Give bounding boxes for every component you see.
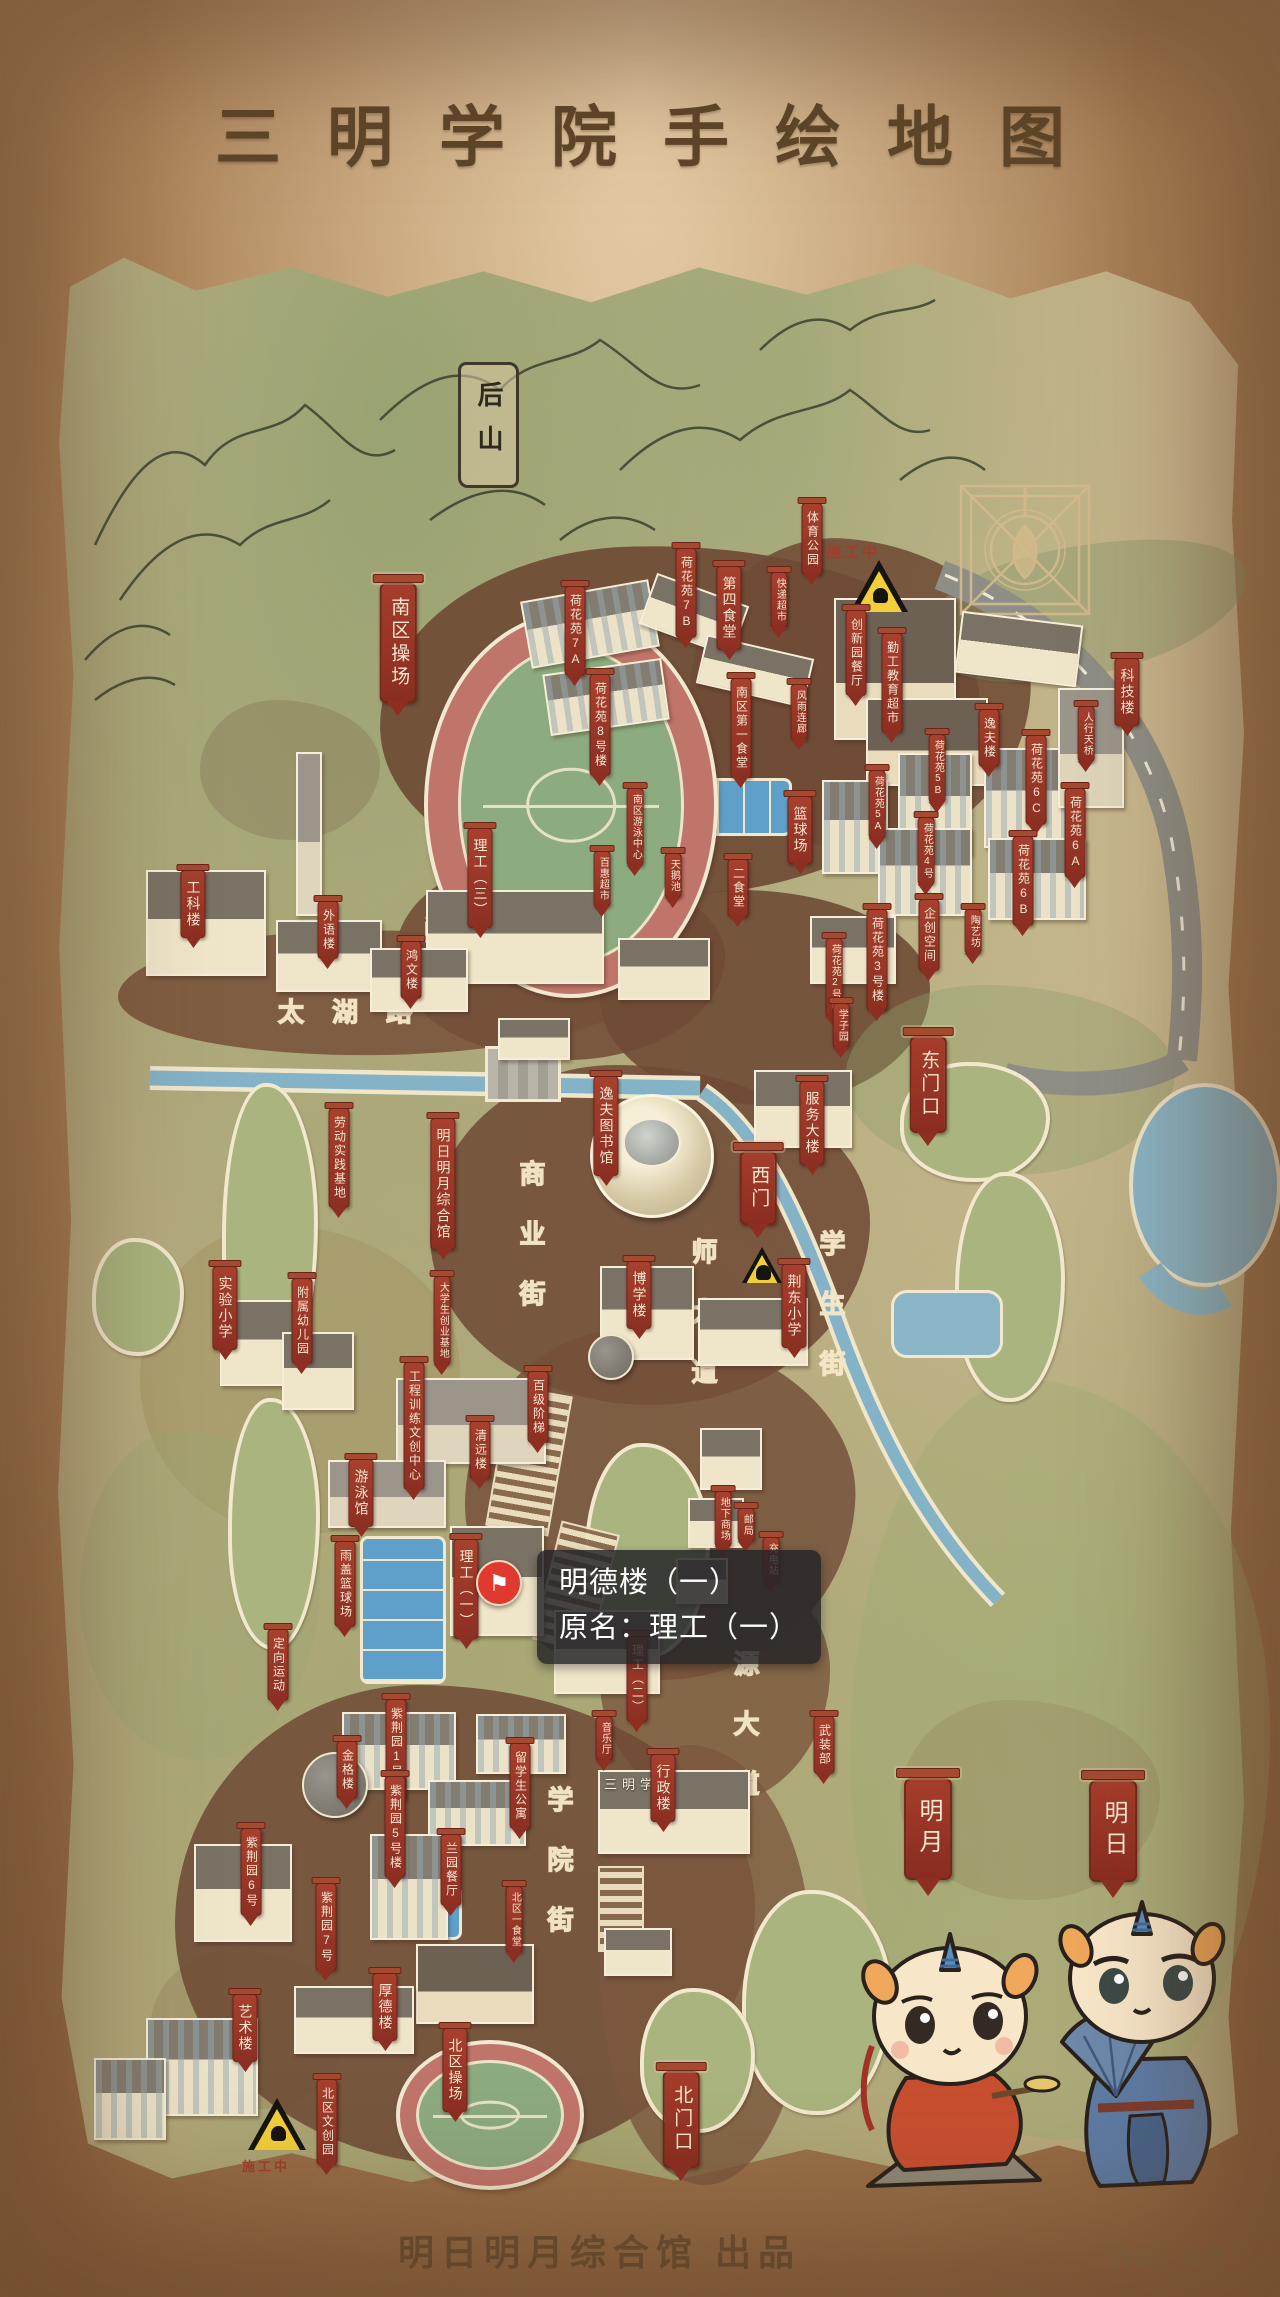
- campus-pond: [891, 1290, 1003, 1358]
- poi-label-yifu-lou[interactable]: 逸夫楼: [979, 709, 1000, 767]
- poi-label-yifu-tushuguan[interactable]: 逸夫图书馆: [593, 1076, 618, 1176]
- poi-label-lanqiu-chang[interactable]: 篮球场: [787, 796, 812, 864]
- poi-label-ligong-1[interactable]: 理工（一）: [453, 1539, 478, 1639]
- poi-label-nanqu-caochang[interactable]: 南区操场: [380, 583, 417, 703]
- lawn-patch: [92, 1238, 184, 1356]
- producer-credit: 明日明月综合馆 出品: [398, 2224, 801, 2276]
- back-hill-sign: 后山: [458, 362, 519, 488]
- tooltip-original-name: 原名：理工（一）: [559, 1606, 799, 1651]
- poi-label-hehuayuan-5a[interactable]: 荷花苑5A: [869, 770, 886, 839]
- poi-label-hehuayuan-7b[interactable]: 荷花苑7B: [676, 548, 697, 638]
- page-title: 三明学院手绘地图: [0, 84, 1280, 180]
- poi-label-houde-lou[interactable]: 厚德楼: [372, 1973, 397, 2041]
- building: [370, 1834, 448, 1940]
- poi-label-zijingyuan-5[interactable]: 紫荆园5号楼: [385, 1776, 406, 1878]
- stadium-infield: [416, 2060, 564, 2170]
- poi-label-xuezi-yuan[interactable]: 学子园: [833, 1003, 850, 1048]
- poi-label-qingong-jiaoyu-chaoshi[interactable]: 勤工教育超市: [882, 633, 903, 733]
- poi-label-beiqu-caochang[interactable]: 北区操场: [442, 2028, 467, 2112]
- poi-label-fuwu-dalou[interactable]: 服务大楼: [799, 1081, 824, 1165]
- observatory-dome: [588, 1334, 634, 1380]
- road-label-xueyuan-street: 学院街: [540, 1786, 577, 1966]
- building: [146, 870, 266, 976]
- poi-label-er-shitang[interactable]: 二食堂: [728, 859, 749, 917]
- poi-label-chuangxinyuan-canting[interactable]: 创新园餐厅: [846, 610, 867, 696]
- stadium-track: [396, 2040, 584, 2190]
- poi-label-xingzheng-lou[interactable]: 行政楼: [650, 1754, 675, 1822]
- poi-label-dingxiang-yundong[interactable]: 定向运动: [268, 1629, 289, 1701]
- poi-label-hehuayuan-5b[interactable]: 荷花苑5B: [929, 734, 946, 803]
- poi-label-beiqu-yi-shitang[interactable]: 北区一食堂: [506, 1886, 523, 1953]
- poi-label-jinge-lou[interactable]: 金格楼: [337, 1741, 358, 1799]
- poi-label-zijingyuan-6[interactable]: 紫荆园6号: [241, 1828, 262, 1916]
- poi-label-lanyuan-canting[interactable]: 兰园餐厅: [441, 1834, 462, 1906]
- poi-label-laodong-shijian-jidi[interactable]: 劳动实践基地: [329, 1108, 350, 1208]
- poi-label-gongke-lou[interactable]: 工科楼: [180, 870, 205, 938]
- building: [604, 1928, 672, 1976]
- poi-label-yugai-lanqiuchang[interactable]: 雨盖篮球场: [335, 1541, 356, 1627]
- poi-label-nanqu-youyong-zhongxin[interactable]: 南区游泳中心: [627, 788, 644, 866]
- poi-label-qingyuan-lou[interactable]: 清远楼: [470, 1421, 491, 1479]
- poi-label-dixia-shangchang[interactable]: 地下商场: [715, 1491, 732, 1547]
- author-credit: 作者：潘璐: [1112, 2242, 1227, 2271]
- poi-label-yishu-lou[interactable]: 艺术楼: [232, 1994, 257, 2062]
- poi-label-mingri-mingyue-zongheguan[interactable]: 明日明月综合馆: [430, 1118, 455, 1250]
- tooltip-building-name: 明德楼（一）: [559, 1561, 799, 1606]
- poi-label-bei-menkou[interactable]: 北门口: [663, 2071, 700, 2168]
- poi-label-mingri[interactable]: 明日: [1089, 1780, 1137, 1882]
- building: [700, 1428, 762, 1490]
- poi-label-disi-shitang[interactable]: 第四食堂: [716, 566, 741, 650]
- poi-label-kuaidi-chaoshi[interactable]: 快递超市: [771, 572, 788, 628]
- compass-rose-icon: [955, 480, 1095, 620]
- poi-label-keji-lou[interactable]: 科技楼: [1114, 658, 1139, 726]
- poi-label-zijingyuan-7[interactable]: 紫荆园7号: [316, 1883, 337, 1971]
- poi-tooltip: 明德楼（一） 原名：理工（一）: [537, 1550, 821, 1664]
- poi-label-waiyu-lou[interactable]: 外语楼: [318, 901, 339, 959]
- building: [618, 938, 710, 1000]
- poi-label-boxue-lou[interactable]: 博学楼: [626, 1261, 651, 1329]
- poi-label-youyong-guan[interactable]: 游泳馆: [348, 1459, 373, 1527]
- poi-label-daxuesheng-chuangye-jidi[interactable]: 大学生创业基地: [434, 1276, 451, 1365]
- poi-label-hehuayuan-4[interactable]: 荷花苑4号: [918, 817, 935, 885]
- gate-plaque: 三明学院: [560, 1774, 720, 1793]
- rockery-dome: [302, 1752, 368, 1818]
- poi-label-renxing-tianqiao[interactable]: 人行天桥: [1078, 706, 1095, 762]
- lawn-patch: [228, 1398, 320, 1650]
- poi-label-dong-menkou[interactable]: 东门口: [910, 1036, 947, 1133]
- poi-label-tiane-chi[interactable]: 天鹅池: [665, 853, 682, 898]
- poi-label-yinyue-ting[interactable]: 音乐厅: [596, 1716, 613, 1761]
- poi-label-hehuayuan-6b[interactable]: 荷花苑6B: [1013, 836, 1034, 926]
- poi-pin-icon[interactable]: ⚑: [476, 1560, 522, 1606]
- poi-label-mingyue[interactable]: 明月: [904, 1778, 952, 1880]
- building: [328, 1460, 446, 1528]
- construction-text-bottom: 施工中: [242, 2156, 290, 2175]
- poi-label-baiji-jieti[interactable]: 百级阶梯: [528, 1371, 549, 1443]
- poi-label-youju[interactable]: 邮局: [738, 1508, 755, 1542]
- poi-label-fengyu-lianlang[interactable]: 风雨连廊: [791, 684, 808, 740]
- construction-text-top: 施工中: [826, 541, 880, 562]
- poi-label-baihui-chaoshi[interactable]: 百惠超市: [594, 851, 611, 907]
- poi-label-liuxuesheng-gongyu[interactable]: 留学生公寓: [510, 1743, 531, 1829]
- poi-label-jingdong-xiaoxue[interactable]: 荆东小学: [781, 1264, 806, 1348]
- poi-label-ligong-3[interactable]: 理工（三）: [467, 828, 492, 928]
- poi-label-wuzhuang-bu[interactable]: 武装部: [814, 1716, 835, 1774]
- poi-label-fushu-youeryuan[interactable]: 附属幼儿园: [292, 1278, 313, 1364]
- road-label-xuesheng-street: 学生街: [812, 1230, 849, 1410]
- poi-label-gongcheng-xunlian-wenchuang-zhongxin[interactable]: 工程训练文创中心: [404, 1362, 425, 1490]
- poi-label-hehuayuan-3[interactable]: 荷花苑3号楼: [867, 909, 888, 1011]
- poi-label-xi-men[interactable]: 西门: [740, 1151, 777, 1225]
- page-background: 三明学院手绘地图: [0, 0, 1280, 2297]
- building: [498, 1018, 570, 1060]
- poi-label-hehuayuan-7a[interactable]: 荷花苑7A: [565, 586, 586, 676]
- road-label-shangye-street: 商业街: [512, 1160, 549, 1340]
- poi-label-hongwen-lou[interactable]: 鸿文楼: [401, 941, 422, 999]
- building: [94, 2058, 166, 2140]
- poi-label-hehuayuan-6a[interactable]: 荷花苑6A: [1065, 788, 1086, 878]
- poi-label-beiqu-wenchuang-yuan[interactable]: 北区文创园: [317, 2079, 338, 2165]
- poi-label-hehuayuan-6c[interactable]: 荷花苑6C: [1026, 735, 1047, 825]
- lawn-patch: [955, 1172, 1065, 1402]
- mascot-mingri-character: [1042, 1900, 1242, 2200]
- poi-label-taoyi-fang[interactable]: 陶艺坊: [965, 909, 982, 954]
- mascot-mingyue-character: [842, 1928, 1062, 2196]
- poi-label-shiyan-xiaoxue[interactable]: 实验小学: [212, 1266, 237, 1350]
- poi-label-hehuayuan-8[interactable]: 荷花苑8号楼: [590, 674, 611, 776]
- basketball-courts: [360, 1536, 446, 1684]
- poi-label-nanqu-diyi-shitang[interactable]: 南区第一食堂: [731, 678, 752, 778]
- poi-label-qichuang-kongjian[interactable]: 企创空间: [919, 899, 940, 971]
- poi-label-tiyu-gongyuan[interactable]: 体育公园: [802, 503, 823, 575]
- building: [296, 752, 322, 916]
